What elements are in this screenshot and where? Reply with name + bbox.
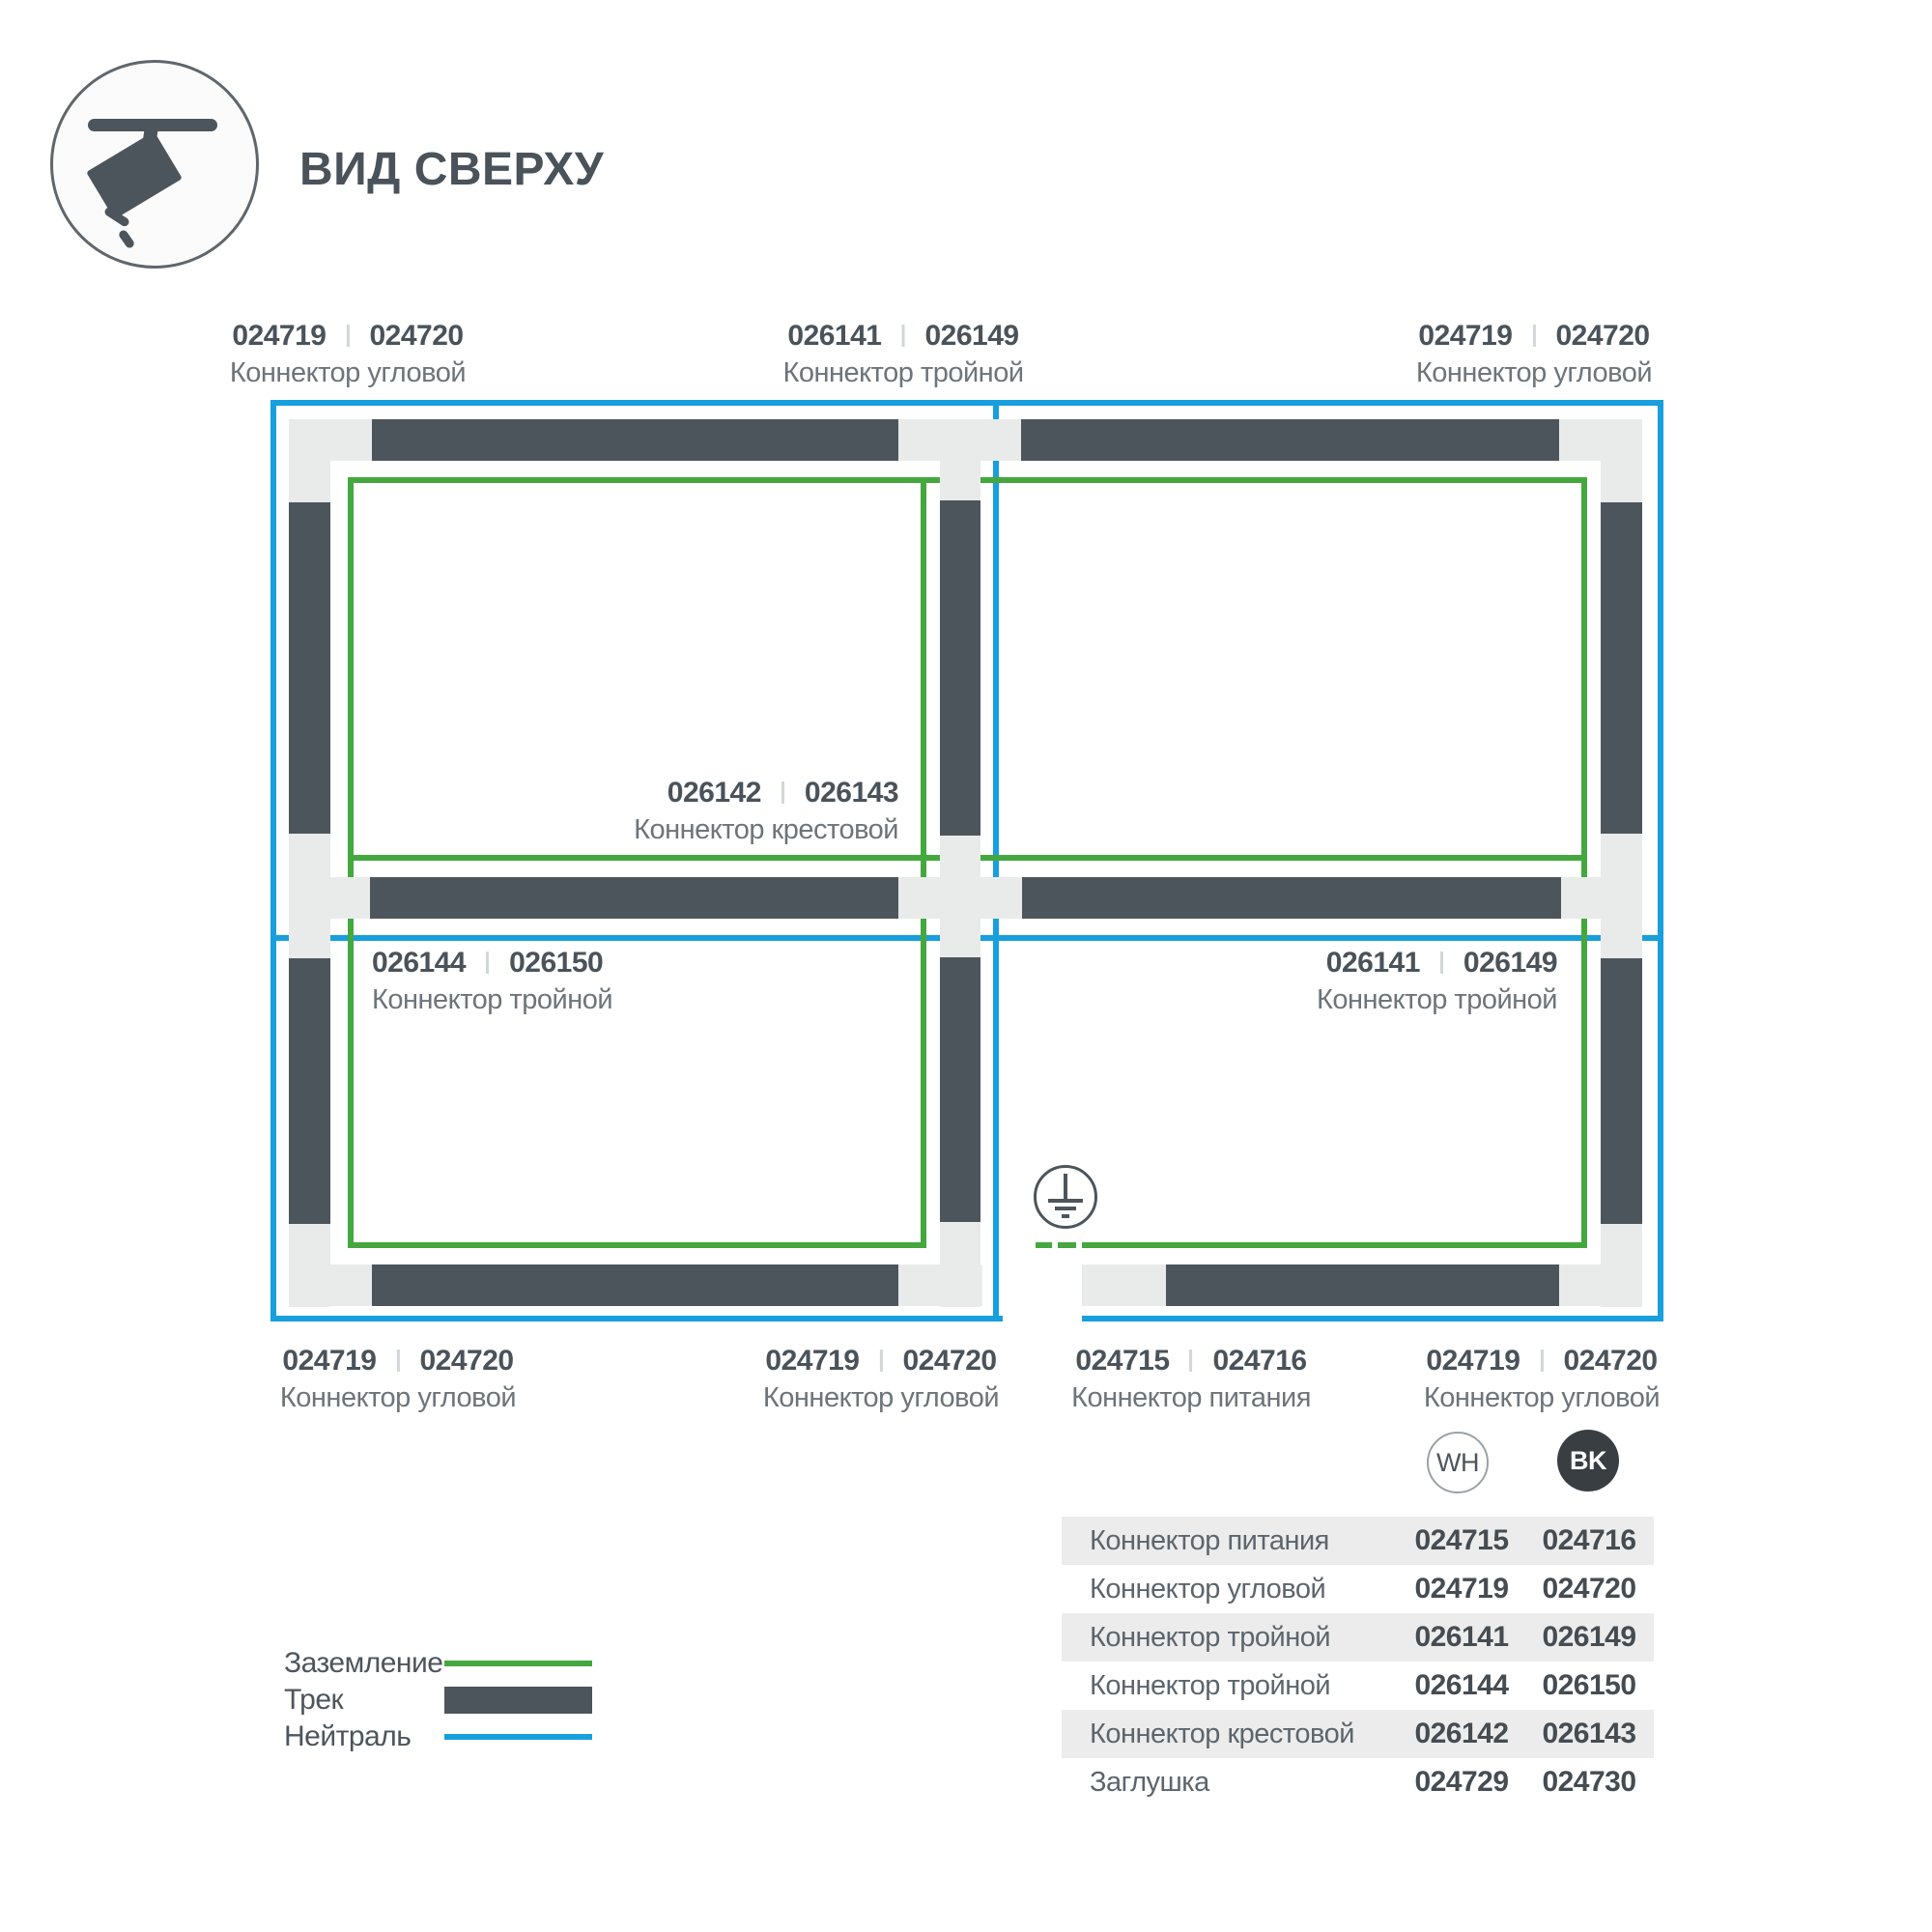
- neutral-line-bottom-right: [1082, 1316, 1663, 1321]
- connector-label-middle-right: 026141026149 Коннектор тройной: [1317, 949, 1557, 1014]
- connector-block-tee-top: [940, 461, 980, 500]
- track-segment: [372, 419, 898, 461]
- article-wh: 024719: [1426, 1345, 1520, 1377]
- connector-label-cross: 026142026143 Коннектор крестовой: [634, 779, 898, 844]
- connector-name: Коннектор угловой: [1424, 1384, 1660, 1412]
- part-article-bk: 024730: [1524, 1766, 1654, 1799]
- connector-block-power-feed: [1082, 1264, 1166, 1306]
- legend-label: Нейтраль: [284, 1720, 444, 1753]
- legend: Заземление Трек Нейтраль: [284, 1645, 593, 1755]
- article-wh: 026144: [372, 947, 466, 979]
- part-article-bk: 024720: [1524, 1573, 1654, 1605]
- divider: [346, 325, 349, 347]
- legend-item-ground: Заземление: [284, 1645, 593, 1682]
- connector-label-bottom-left: 024719024720 Коннектор угловой: [280, 1347, 516, 1412]
- page-title: ВИД СВЕРХУ: [299, 143, 604, 196]
- divider: [781, 781, 784, 804]
- connector-block-corner-bottom-left: [289, 1264, 372, 1306]
- badge-label: WH: [1436, 1448, 1479, 1478]
- part-article-wh: 024719: [1399, 1573, 1524, 1605]
- article-wh: 024719: [1418, 320, 1512, 352]
- connector-label-bottom-middle: 024719024720 Коннектор угловой: [763, 1347, 999, 1412]
- neutral-line-right: [1658, 400, 1663, 1321]
- table-row: Заглушка 024729 024730: [1062, 1758, 1654, 1806]
- article-bk: 024720: [1555, 320, 1649, 352]
- connector-block-tee-right: [1561, 877, 1601, 919]
- badge-label: BK: [1570, 1446, 1606, 1476]
- part-article-wh: 024729: [1399, 1766, 1524, 1799]
- part-name: Коннектор угловой: [1062, 1574, 1399, 1605]
- ground-line-left: [348, 477, 354, 1248]
- track-spotlight-icon: [50, 60, 259, 269]
- divider: [1190, 1350, 1193, 1372]
- connector-block-tee-left: [289, 834, 330, 958]
- connector-block-corner-bottom-right: [1559, 1264, 1642, 1306]
- connector-block-tee-left: [330, 877, 370, 919]
- legend-swatch-ground: [444, 1645, 592, 1682]
- article-bk: 024720: [369, 320, 463, 352]
- table-row: Коннектор тройной 026144 026150: [1062, 1662, 1654, 1710]
- connector-block-cross: [940, 836, 980, 877]
- connector-label-top-middle: 026141026149 Коннектор тройной: [782, 322, 1023, 387]
- article-wh: 026141: [1326, 947, 1420, 979]
- article-wh: 024715: [1075, 1345, 1169, 1377]
- track-segment: [1022, 877, 1561, 919]
- connector-label-power: 024715024716 Коннектор питания: [1071, 1347, 1311, 1412]
- divider: [879, 1350, 882, 1372]
- article-bk: 026149: [1463, 947, 1557, 979]
- color-variant-badge-white: WH: [1427, 1432, 1489, 1493]
- part-article-bk: 026143: [1524, 1718, 1654, 1750]
- track-segment: [1601, 502, 1642, 834]
- connector-block-corner-top-left: [289, 419, 330, 502]
- ground-line-right: [1581, 477, 1587, 1248]
- icon-light-ray: [118, 229, 136, 250]
- icon-spot-body: [86, 131, 183, 219]
- article-wh: 026142: [668, 777, 761, 809]
- track-segment: [370, 877, 898, 919]
- part-article-wh: 026144: [1399, 1669, 1524, 1702]
- connector-name: Коннектор угловой: [1416, 359, 1652, 387]
- divider: [1532, 325, 1535, 347]
- track-segment: [289, 958, 330, 1224]
- connector-block-corner-top-right: [1601, 419, 1642, 502]
- divider: [1440, 952, 1443, 974]
- track-segment: [289, 502, 330, 834]
- article-bk: 024720: [419, 1345, 513, 1377]
- connector-label-middle-left: 026144026150 Коннектор тройной: [372, 949, 612, 1014]
- part-name: Коннектор тройной: [1062, 1670, 1399, 1702]
- parts-table: Коннектор питания 024715 024716 Коннекто…: [1062, 1517, 1654, 1806]
- connector-block-cross: [898, 877, 1022, 919]
- article-wh: 026141: [787, 320, 881, 352]
- ground-line-dash: [1058, 1242, 1076, 1248]
- neutral-line-left: [270, 400, 276, 1321]
- part-name: Коннектор крестовой: [1062, 1719, 1399, 1750]
- track-segment: [940, 957, 980, 1222]
- neutral-line-bottom-left: [270, 1316, 1003, 1321]
- part-article-wh: 026142: [1399, 1718, 1524, 1750]
- connector-name: Коннектор крестовой: [634, 816, 898, 844]
- neutral-line-top: [270, 400, 1663, 406]
- connector-name: Коннектор угловой: [280, 1384, 516, 1412]
- table-row: Коннектор крестовой 026142 026143: [1062, 1710, 1654, 1758]
- divider: [396, 1350, 399, 1372]
- legend-label: Заземление: [284, 1647, 444, 1680]
- legend-swatch-track: [444, 1682, 592, 1719]
- connector-label-top-left: 024719024720 Коннектор угловой: [230, 322, 466, 387]
- connector-name: Коннектор угловой: [763, 1384, 999, 1412]
- connector-name: Коннектор тройной: [782, 359, 1023, 387]
- part-name: Заглушка: [1062, 1767, 1399, 1799]
- neutral-line-center-vertical: [993, 400, 999, 1321]
- connector-name: Коннектор питания: [1071, 1384, 1311, 1412]
- article-bk: 026150: [509, 947, 603, 979]
- article-bk: 026149: [924, 320, 1018, 352]
- connector-block-corner-bottom-middle: [898, 1264, 982, 1306]
- connector-label-bottom-right: 024719024720 Коннектор угловой: [1424, 1347, 1660, 1412]
- track-segment: [372, 1264, 898, 1306]
- divider: [486, 952, 489, 974]
- earth-ground-icon: [1034, 1165, 1097, 1229]
- part-article-wh: 024715: [1399, 1524, 1524, 1557]
- track-segment: [1166, 1264, 1559, 1306]
- connector-block-tee-top: [898, 419, 1021, 461]
- connector-name: Коннектор тройной: [1317, 986, 1557, 1014]
- ground-line-center-vertical: [921, 477, 926, 1248]
- track-segment: [1021, 419, 1559, 461]
- legend-label: Трек: [284, 1684, 444, 1717]
- ground-line-bottom-right: [1082, 1242, 1587, 1248]
- article-wh: 024719: [765, 1345, 859, 1377]
- legend-swatch-neutral: [444, 1719, 592, 1755]
- part-name: Коннектор тройной: [1062, 1622, 1399, 1654]
- color-variant-badge-black: BK: [1557, 1430, 1619, 1492]
- divider: [901, 325, 904, 347]
- table-row: Коннектор тройной 026141 026149: [1062, 1613, 1654, 1662]
- connector-name: Коннектор тройной: [372, 986, 612, 1014]
- legend-item-track: Трек: [284, 1682, 593, 1719]
- part-name: Коннектор питания: [1062, 1525, 1399, 1557]
- article-bk: 024720: [1563, 1345, 1657, 1377]
- table-row: Коннектор угловой 024719 024720: [1062, 1565, 1654, 1613]
- part-article-bk: 026149: [1524, 1621, 1654, 1654]
- track-segment: [940, 500, 980, 836]
- connector-label-top-right: 024719024720 Коннектор угловой: [1416, 322, 1652, 387]
- connector-block-cross: [940, 919, 980, 957]
- article-bk: 024720: [902, 1345, 996, 1377]
- divider: [1540, 1350, 1543, 1372]
- connector-block-tee-right: [1601, 834, 1642, 958]
- part-article-wh: 026141: [1399, 1621, 1524, 1654]
- part-article-bk: 026150: [1524, 1669, 1654, 1702]
- article-wh: 024719: [232, 320, 326, 352]
- ground-line-bottom-left: [348, 1242, 926, 1248]
- ground-line-dash: [1036, 1242, 1052, 1248]
- connector-name: Коннектор угловой: [230, 359, 466, 387]
- article-bk: 026143: [805, 777, 898, 809]
- page: ВИД СВЕРХУ: [0, 0, 1932, 1932]
- article-bk: 024716: [1213, 1345, 1307, 1377]
- article-wh: 024719: [282, 1345, 376, 1377]
- legend-item-neutral: Нейтраль: [284, 1719, 593, 1755]
- table-row: Коннектор питания 024715 024716: [1062, 1517, 1654, 1565]
- part-article-bk: 024716: [1524, 1524, 1654, 1557]
- track-segment: [1601, 958, 1642, 1224]
